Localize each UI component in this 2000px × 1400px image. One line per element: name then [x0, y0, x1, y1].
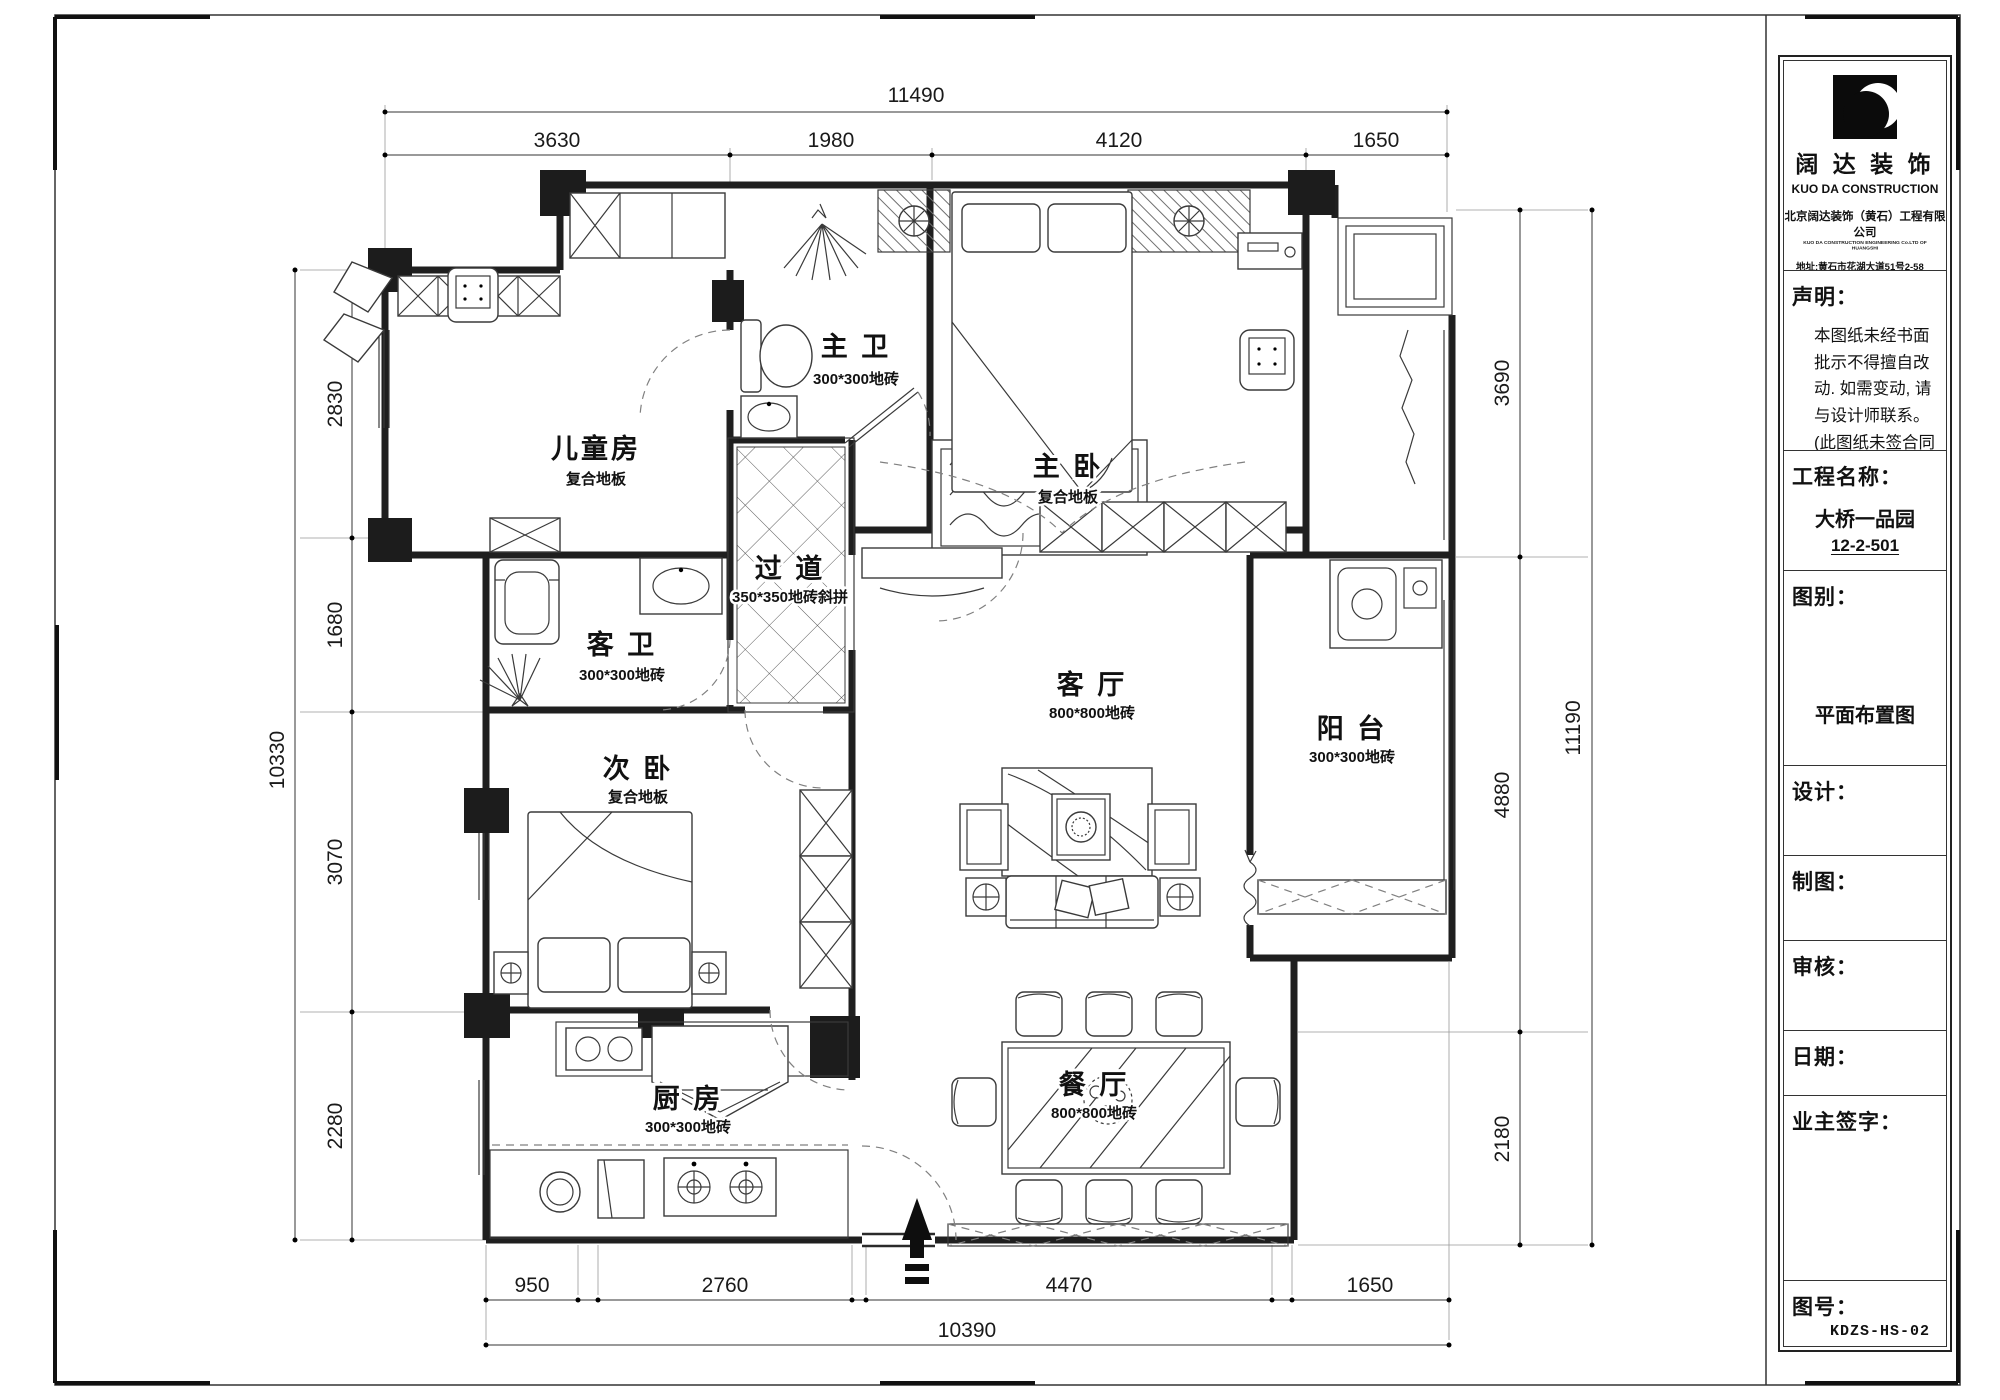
room-floor-master-bath: 300*300地砖: [813, 370, 899, 388]
dim-right-2: 4880: [1491, 772, 1514, 819]
room-floor-corridor: 350*350地砖斜拼: [732, 588, 848, 606]
room-floor-balcony: 300*300地砖: [1309, 748, 1395, 766]
drawing-number-section: 图号： KDZS-HS-02: [1784, 1281, 1946, 1346]
dimension-left: 10330 2830 1680 3070 2280: [266, 268, 486, 1243]
dim-bottom-4: 1650: [1347, 1274, 1394, 1297]
auditor-section: 审核：: [1784, 941, 1946, 1031]
project-name-value: 大桥一品园: [1784, 503, 1946, 532]
auditor-label: 审核：: [1784, 941, 1946, 981]
room-floor-second-bedroom: 复合地板: [607, 788, 669, 806]
company-name-en: KUO DA CONSTRUCTION ENGINEERING Co.LTD O…: [1792, 241, 1938, 252]
drafter-section: 制图：: [1784, 856, 1946, 941]
drawing-type-value: 平面布置图: [1784, 699, 1946, 728]
drawing-sheet: 11490 3630 1980 4120 1650 950 2760 4470 …: [0, 0, 2000, 1400]
statement-text: 本图纸未经书面 批示不得擅自改 动. 如需变动, 请 与设计师联系。 (此图纸未…: [1814, 323, 1946, 451]
room-floor-master-bedroom: 复合地板: [1037, 488, 1099, 506]
dim-left-2: 1680: [324, 602, 347, 649]
date-label: 日期：: [1784, 1031, 1946, 1071]
dim-left-4: 2280: [324, 1103, 347, 1150]
drawing-type-label: 图别：: [1784, 571, 1946, 611]
project-name-label: 工程名称：: [1784, 451, 1946, 491]
designer-section: 设计：: [1784, 766, 1946, 856]
room-label-master-bedroom: 主 卧: [1033, 452, 1104, 482]
kuoda-logo-icon: [1833, 75, 1897, 139]
project-name-section: 工程名称： 大桥一品园 12-2-501: [1784, 451, 1946, 571]
dim-top-total: 11490: [888, 84, 945, 107]
title-block: 阔 达 装 饰 KUO DA CONSTRUCTION 北京阔达装饰（黄石）工程…: [1778, 55, 1952, 1352]
owner-signature-section: 业主签字：: [1784, 1096, 1946, 1281]
room-floor-kids: 复合地板: [565, 470, 627, 488]
room-floor-living: 800*800地砖: [1049, 704, 1135, 722]
room-label-dining: 餐 厅: [1059, 1070, 1130, 1100]
designer-label: 设计：: [1784, 766, 1946, 806]
dim-bottom-3: 4470: [1046, 1274, 1093, 1297]
room-floor-guest-bath: 300*300地砖: [579, 666, 665, 684]
room-label-guest-bath: 客 卫: [587, 629, 658, 660]
project-unit-number: 12-2-501: [1784, 536, 1946, 556]
dimension-bottom: 950 2760 4470 1650 10390: [484, 962, 1452, 1348]
room-label-kitchen: 厨 房: [653, 1084, 724, 1114]
dim-top-4: 1650: [1353, 129, 1400, 152]
dim-top-2: 1980: [808, 129, 855, 152]
drawing-number-value: KDZS-HS-02: [1830, 1323, 1946, 1340]
north-arrow-icon: [902, 1198, 932, 1284]
floor-plan-canvas: 11490 3630 1980 4120 1650 950 2760 4470 …: [0, 0, 2000, 1400]
date-section: 日期：: [1784, 1031, 1946, 1096]
room-floor-kitchen: 300*300地砖: [645, 1118, 731, 1136]
room-label-kids: 儿童房: [551, 433, 641, 464]
statement-label: 声明：: [1784, 271, 1946, 311]
drawing-number-label: 图号：: [1784, 1281, 1946, 1321]
dim-left-1: 2830: [324, 381, 347, 428]
dim-top-1: 3630: [534, 129, 581, 152]
room-label-balcony: 阳 台: [1317, 713, 1388, 744]
company-address: 地址:黄石市花湖大道51号2-58: [1796, 259, 1946, 271]
room-label-second-bedroom: 次 卧: [603, 754, 674, 784]
dim-left-3: 3070: [324, 839, 347, 886]
owner-signature-label: 业主签字：: [1784, 1096, 1946, 1136]
room-label-living: 客 厅: [1057, 669, 1128, 700]
dim-right-1: 3690: [1491, 360, 1514, 407]
drafter-label: 制图：: [1784, 856, 1946, 896]
brand-name-cn: 阔 达 装 饰: [1784, 145, 1946, 179]
company-name: 北京阔达装饰（黄石）工程有限公司: [1784, 208, 1946, 240]
drawing-type-section: 图别： 平面布置图: [1784, 571, 1946, 766]
brand-name-en: KUO DA CONSTRUCTION: [1784, 182, 1946, 196]
master-bedroom-closet: [1040, 502, 1286, 552]
dim-bottom-1: 950: [514, 1274, 549, 1297]
dim-right-total: 11190: [1562, 700, 1585, 755]
room-label-master-bath: 主 卫: [821, 332, 892, 362]
room-label-corridor: 过 道: [755, 553, 826, 584]
dim-bottom-2: 2760: [702, 1274, 749, 1297]
dim-top-3: 4120: [1096, 129, 1143, 152]
second-bedroom-wardrobe: [800, 790, 852, 988]
dim-bottom-total: 10390: [938, 1319, 996, 1342]
dim-right-3: 2180: [1491, 1116, 1514, 1163]
dim-left-total: 10330: [266, 731, 289, 789]
room-floor-dining: 800*800地砖: [1051, 1104, 1137, 1122]
statement-section: 声明： 本图纸未经书面 批示不得擅自改 动. 如需变动, 请 与设计师联系。 (…: [1784, 271, 1946, 451]
title-block-logo-section: 阔 达 装 饰 KUO DA CONSTRUCTION 北京阔达装饰（黄石）工程…: [1784, 61, 1946, 271]
